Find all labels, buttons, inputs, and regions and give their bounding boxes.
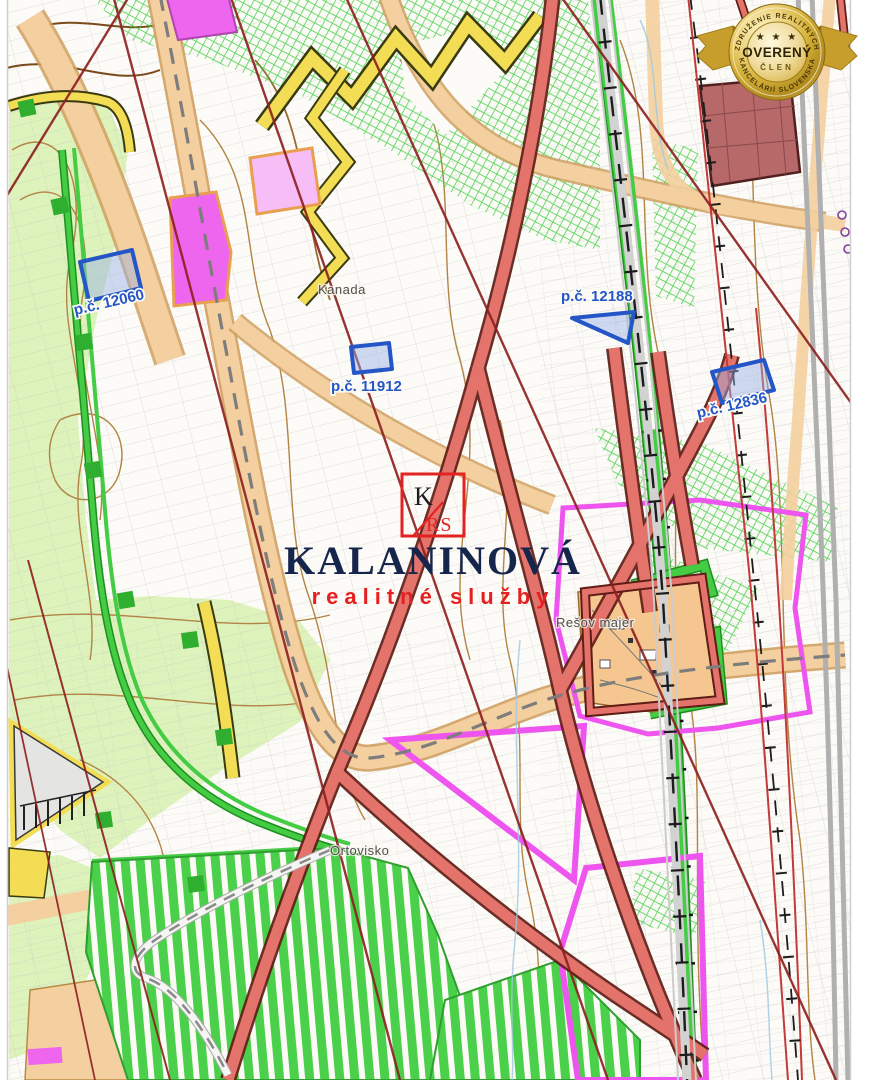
place-label-ortovisko: Ortovisko <box>330 843 389 858</box>
zoning-map-image: Kanada Rešov majer Ortovisko p.č. 12060 … <box>0 0 869 1080</box>
monogram-k: K <box>414 482 433 511</box>
zoning-map-screenshot: Kanada Rešov majer Ortovisko p.č. 12060 … <box>0 0 869 1080</box>
badge-subtitle: ČLEN <box>760 63 794 72</box>
brand-tagline: realitné služby <box>312 584 555 609</box>
parcel-label-11912: p.č. 11912 <box>331 378 402 395</box>
place-label-kanada: Kanada <box>318 282 366 297</box>
brand-name: KALANINOVÁ <box>284 538 582 583</box>
badge-title: OVERENÝ <box>742 45 812 60</box>
monogram-rs: RS <box>426 514 452 536</box>
parcel-label-12188: p.č. 12188 <box>561 288 633 305</box>
place-label-resov-majer: Rešov majer <box>556 615 635 630</box>
badge-stars-icon: ★ ★ ★ <box>756 32 798 43</box>
parcel-marker-11912 <box>351 343 392 373</box>
